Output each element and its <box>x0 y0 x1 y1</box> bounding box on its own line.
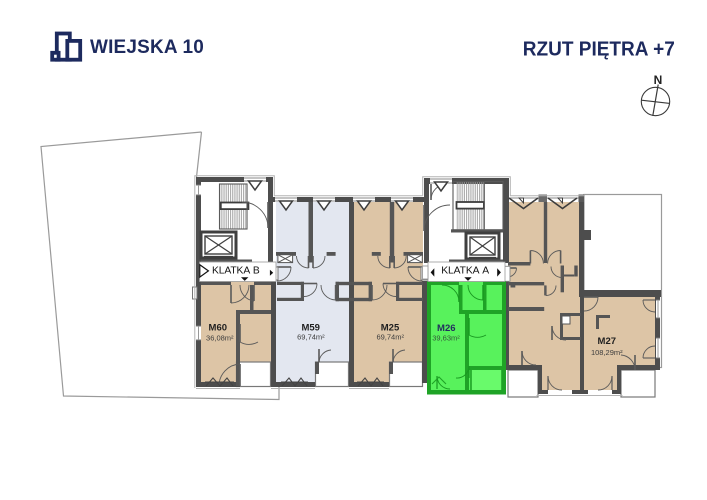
svg-text:M27: M27 <box>598 336 616 347</box>
svg-text:A: A <box>482 266 489 277</box>
svg-text:69,74m²: 69,74m² <box>376 333 404 342</box>
svg-text:M60: M60 <box>209 322 227 333</box>
svg-text:KLATKA: KLATKA <box>441 266 479 277</box>
svg-text:N: N <box>654 73 663 87</box>
svg-text:KLATKA: KLATKA <box>212 266 250 277</box>
svg-text:36,08m²: 36,08m² <box>206 334 234 343</box>
svg-text:108,29m²: 108,29m² <box>591 348 623 357</box>
svg-text:M26: M26 <box>437 323 455 334</box>
svg-text:39,63m²: 39,63m² <box>432 334 460 343</box>
svg-text:RZUT PIĘTRA +7: RZUT PIĘTRA +7 <box>523 38 675 61</box>
svg-text:WIEJSKA 10: WIEJSKA 10 <box>90 36 204 58</box>
svg-text:B: B <box>253 266 260 277</box>
svg-text:69,74m²: 69,74m² <box>297 333 325 342</box>
